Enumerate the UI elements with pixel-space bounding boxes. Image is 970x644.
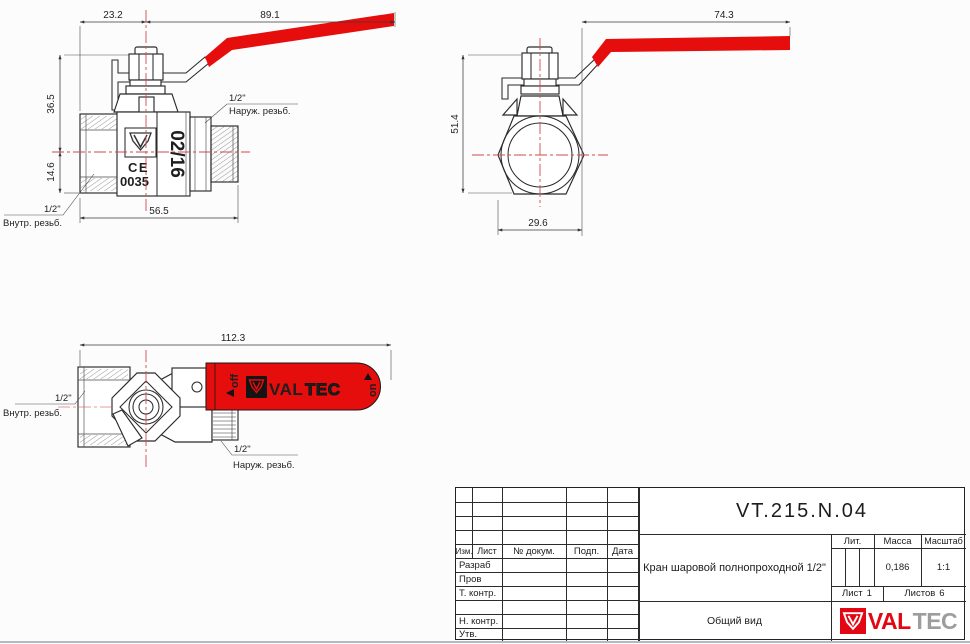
dim-29-6: 29.6 [528,218,548,229]
row-razrab: Разраб [456,558,502,572]
date-code: 02/16 [166,130,187,178]
col-header-podp: Подп. [566,544,607,558]
dim-74-3: 74.3 [714,10,734,21]
valtec-logo-shield-icon [840,608,866,634]
valtec-logo-tec: TEC [913,608,958,635]
lit-label: Лит. [831,534,874,548]
front-male-thread [211,126,238,182]
handle-brand-val: VAL [269,380,303,399]
front-female-size-label: 1/2" [44,204,61,215]
col-header-data: Дата [607,544,638,558]
front-male-thread-label: Наруж. резьб. [229,106,291,117]
part-number: VT.215.N.04 [638,488,966,534]
valve-technical-drawing: CE 0035 02/16 23.2 89.1 36.5 14.6 56.5 [0,0,970,487]
massa-label: Масса [874,534,921,548]
side-view: 74.3 51.4 29.6 [450,10,790,236]
front-male-size-label: 1/2" [229,93,246,104]
handle-on-label: on [367,383,379,397]
front-female-thread-label: Внутр. резьб. [3,218,62,229]
dim-23-2: 23.2 [103,10,123,21]
sheet-label: Лист [842,588,863,599]
massa-value: 0,186 [874,548,921,586]
top-view: off VAL TEC on 112.3 1/2" Внутр. резьб. … [3,333,391,471]
front-handle-lever [205,13,394,67]
screenshot-bottom-border [0,641,970,643]
masshtab-value: 1:1 [921,548,966,586]
row-nkontr: Н. контр. [456,614,502,628]
dim-112-3: 112.3 [221,333,246,344]
valtec-logo: VALTEC [831,601,966,641]
title-block: Изм. Лист № докум. Подп. Дата Разраб Про… [455,487,965,640]
sheets-value: 6 [939,588,944,599]
sheet-value: 1 [867,588,872,599]
top-female-size-label: 1/2" [55,393,72,404]
front-stem-washer [130,80,161,86]
ce-number: 0035 [120,174,149,189]
row-prov: Пров [456,572,502,586]
top-male-thread-label: Наруж. резьб. [233,460,295,471]
dim-51-4: 51.4 [450,114,461,134]
sheets-cell: Листов 6 [883,586,966,601]
valtec-logo-val: VAL [868,608,911,635]
front-coupling-hex [190,117,211,191]
front-view: CE 0035 02/16 23.2 89.1 36.5 14.6 56.5 [3,10,395,229]
dim-14-6: 14.6 [46,162,57,182]
dim-56-5: 56.5 [149,206,169,217]
col-header-doc: № докум. [502,544,566,558]
row-utv: Утв. [456,628,502,641]
dim-89-1: 89.1 [260,10,280,21]
sheet-cell: Лист 1 [831,586,883,601]
masshtab-label: Масштаб [921,534,966,548]
dim-36-5: 36.5 [46,94,57,114]
handle-off-label: off [229,374,241,388]
row-tkontr: Т. контр. [456,586,502,600]
col-header-list: Лист [472,544,502,558]
top-female-thread-label: Внутр. резьб. [3,408,62,419]
col-header-izm: Изм. [456,544,472,558]
doc-type: Общий вид [638,601,831,641]
handle-brand-tec: TEC [305,380,341,399]
top-male-size-label: 1/2" [234,444,251,455]
side-handle-lever [592,36,790,67]
part-description: Кран шаровой полнопроходной 1/2" [638,534,831,601]
sheets-label: Листов [904,588,935,599]
